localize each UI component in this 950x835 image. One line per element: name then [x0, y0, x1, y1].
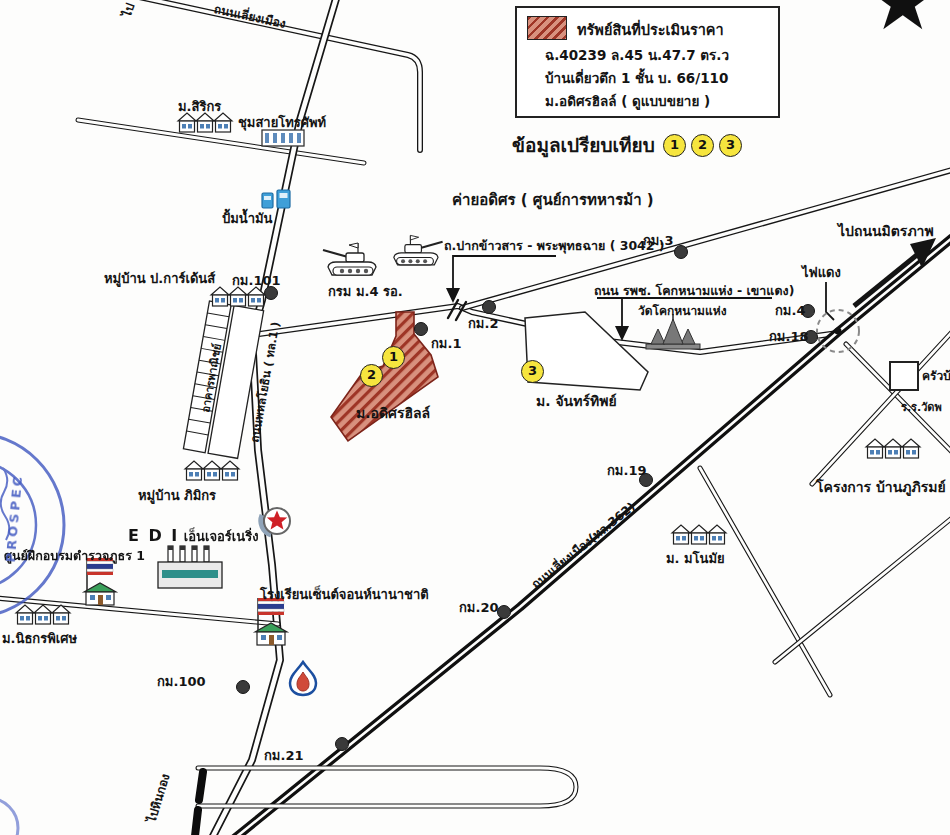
label-st-john: โรงเรียนเซ็นต์จอนห์นานาชาติ [260, 584, 429, 605]
map-marker-2: 2 [360, 364, 383, 387]
km-dot-3 [675, 246, 688, 259]
label-wat-khok: วัดโคกหนามแห่ง [638, 301, 727, 320]
label-telephone-exchange: ชุมสายโทรศัพท์ [238, 112, 326, 133]
label-edi-latin: E D I [128, 526, 179, 545]
appraisal-map: ทรัพย์สินที่ประเมินราคา ฉ.40239 ล.45 น.4… [0, 0, 950, 835]
label-km18: กม.18 [769, 326, 808, 347]
label-km21: กม.21 [264, 745, 303, 766]
label-edi-thai: เอ็นเจอร์เนริ่ง [184, 529, 259, 544]
tank-icon-right [394, 235, 443, 264]
ptt-flame-icon [290, 662, 316, 695]
label-police-academy: ศูนย์ฝึกอบรมตำรวจภูธร 1 [4, 546, 145, 566]
label-edi: E D I เอ็นเจอร์เนริ่ง [128, 526, 259, 547]
houses-icon-pimikorn [185, 461, 239, 480]
label-sirikorn: ม.สิริกร [178, 96, 221, 117]
label-phupirom: โครงการ บ้านภูภิรมย์ [816, 476, 946, 498]
label-road-rpch: ถนน รพช. โคกหนามแห่ง - เขาแดง) [594, 281, 794, 301]
krua-ban-square [890, 362, 918, 390]
legend-line-deed: ฉ.40239 ล.45 น.47.7 ตร.ว [545, 44, 729, 66]
label-krua-ban: ครัวบ้า [922, 366, 950, 385]
km-dot-1 [415, 323, 428, 336]
houses-icon-phupirom [866, 439, 920, 458]
label-km101: กม.101 [232, 270, 281, 291]
label-km19: กม.19 [607, 460, 646, 481]
label-red-light: ไฟแดง [802, 262, 841, 283]
label-km20: กม.20 [459, 597, 498, 618]
label-pimikorn: หมู่บ้าน ภิมิกร [138, 485, 216, 506]
legend-line-house: บ้านเดี่ยวตึก 1 ชั้น บ. 66/110 [545, 67, 728, 89]
label-adisorn-hill: ม.อดิศรฮิลล์ [356, 402, 430, 424]
label-chanthip: ม. จันทร์ทิพย์ [536, 390, 617, 412]
map-canvas [0, 0, 950, 835]
label-nithikorn: ม.นิธกรพิเศษ [2, 628, 77, 649]
compass-star-icon: ★ [866, 0, 940, 42]
label-km1: กม.1 [431, 333, 461, 354]
comparison-title: ข้อมูลเปรียบเทียบ [512, 130, 655, 160]
comparison-marker-2: 2 [691, 134, 714, 157]
leader-red-light [826, 282, 834, 320]
gas-pump-icon [262, 190, 290, 208]
label-manomai: ม. มโนมัย [666, 548, 725, 569]
label-krom-m4: กรม ม.4 รอ. [328, 281, 403, 302]
label-road-pak-khao-san: ถ.ปากข้าวสาร - พระพุทธฉาย ( 3042 ) [444, 236, 665, 256]
label-gas-station: ปั้มน้ำมัน [222, 208, 272, 229]
map-marker-1: 1 [382, 346, 405, 369]
km-dot-2 [483, 301, 496, 314]
factory-icon [158, 546, 222, 588]
legend-title: ทรัพย์สินที่ประเมินราคา [577, 18, 724, 41]
intersection-dot [835, 328, 842, 335]
arrowhead-rpch [615, 326, 629, 341]
label-km4: กม.4 [775, 300, 805, 321]
comparison-marker-1: 1 [663, 134, 686, 157]
km-dot-100 [237, 681, 250, 694]
houses-icon-nithikorn [16, 605, 70, 624]
label-wat-school: ร.ร.วัดพ [901, 398, 942, 416]
map-marker-3: 3 [521, 360, 544, 383]
km-dot-20 [498, 606, 511, 619]
label-p-gardens: หมู่บ้าน ป.การ์เด้นส์ [104, 268, 215, 289]
road-bottom-loop [198, 768, 576, 806]
legend-property-swatch [527, 16, 567, 40]
label-km2: กม.2 [468, 313, 498, 334]
comparison-marker-3: 3 [719, 134, 742, 157]
houses-icon-manomai [672, 525, 726, 544]
label-cavalry-camp: ค่ายอดิศร ( ศูนย์การทหารม้า ) [452, 188, 654, 212]
label-km3: กม.3 [643, 230, 673, 251]
road-network [0, 0, 950, 835]
chanthip-parcel [525, 312, 648, 390]
label-to-mittraphap: ไปถนนมิตรภาพ [838, 220, 934, 242]
legend-line-village: ม.อดิศรฮิลล์ ( ดูแบบขยาย ) [545, 90, 710, 112]
legend-box: ทรัพย์สินที่ประเมินราคา ฉ.40239 ล.45 น.4… [515, 6, 780, 118]
tank-icon-left [323, 243, 376, 275]
label-km100: กม.100 [157, 671, 206, 692]
km-dot-21 [336, 738, 349, 751]
